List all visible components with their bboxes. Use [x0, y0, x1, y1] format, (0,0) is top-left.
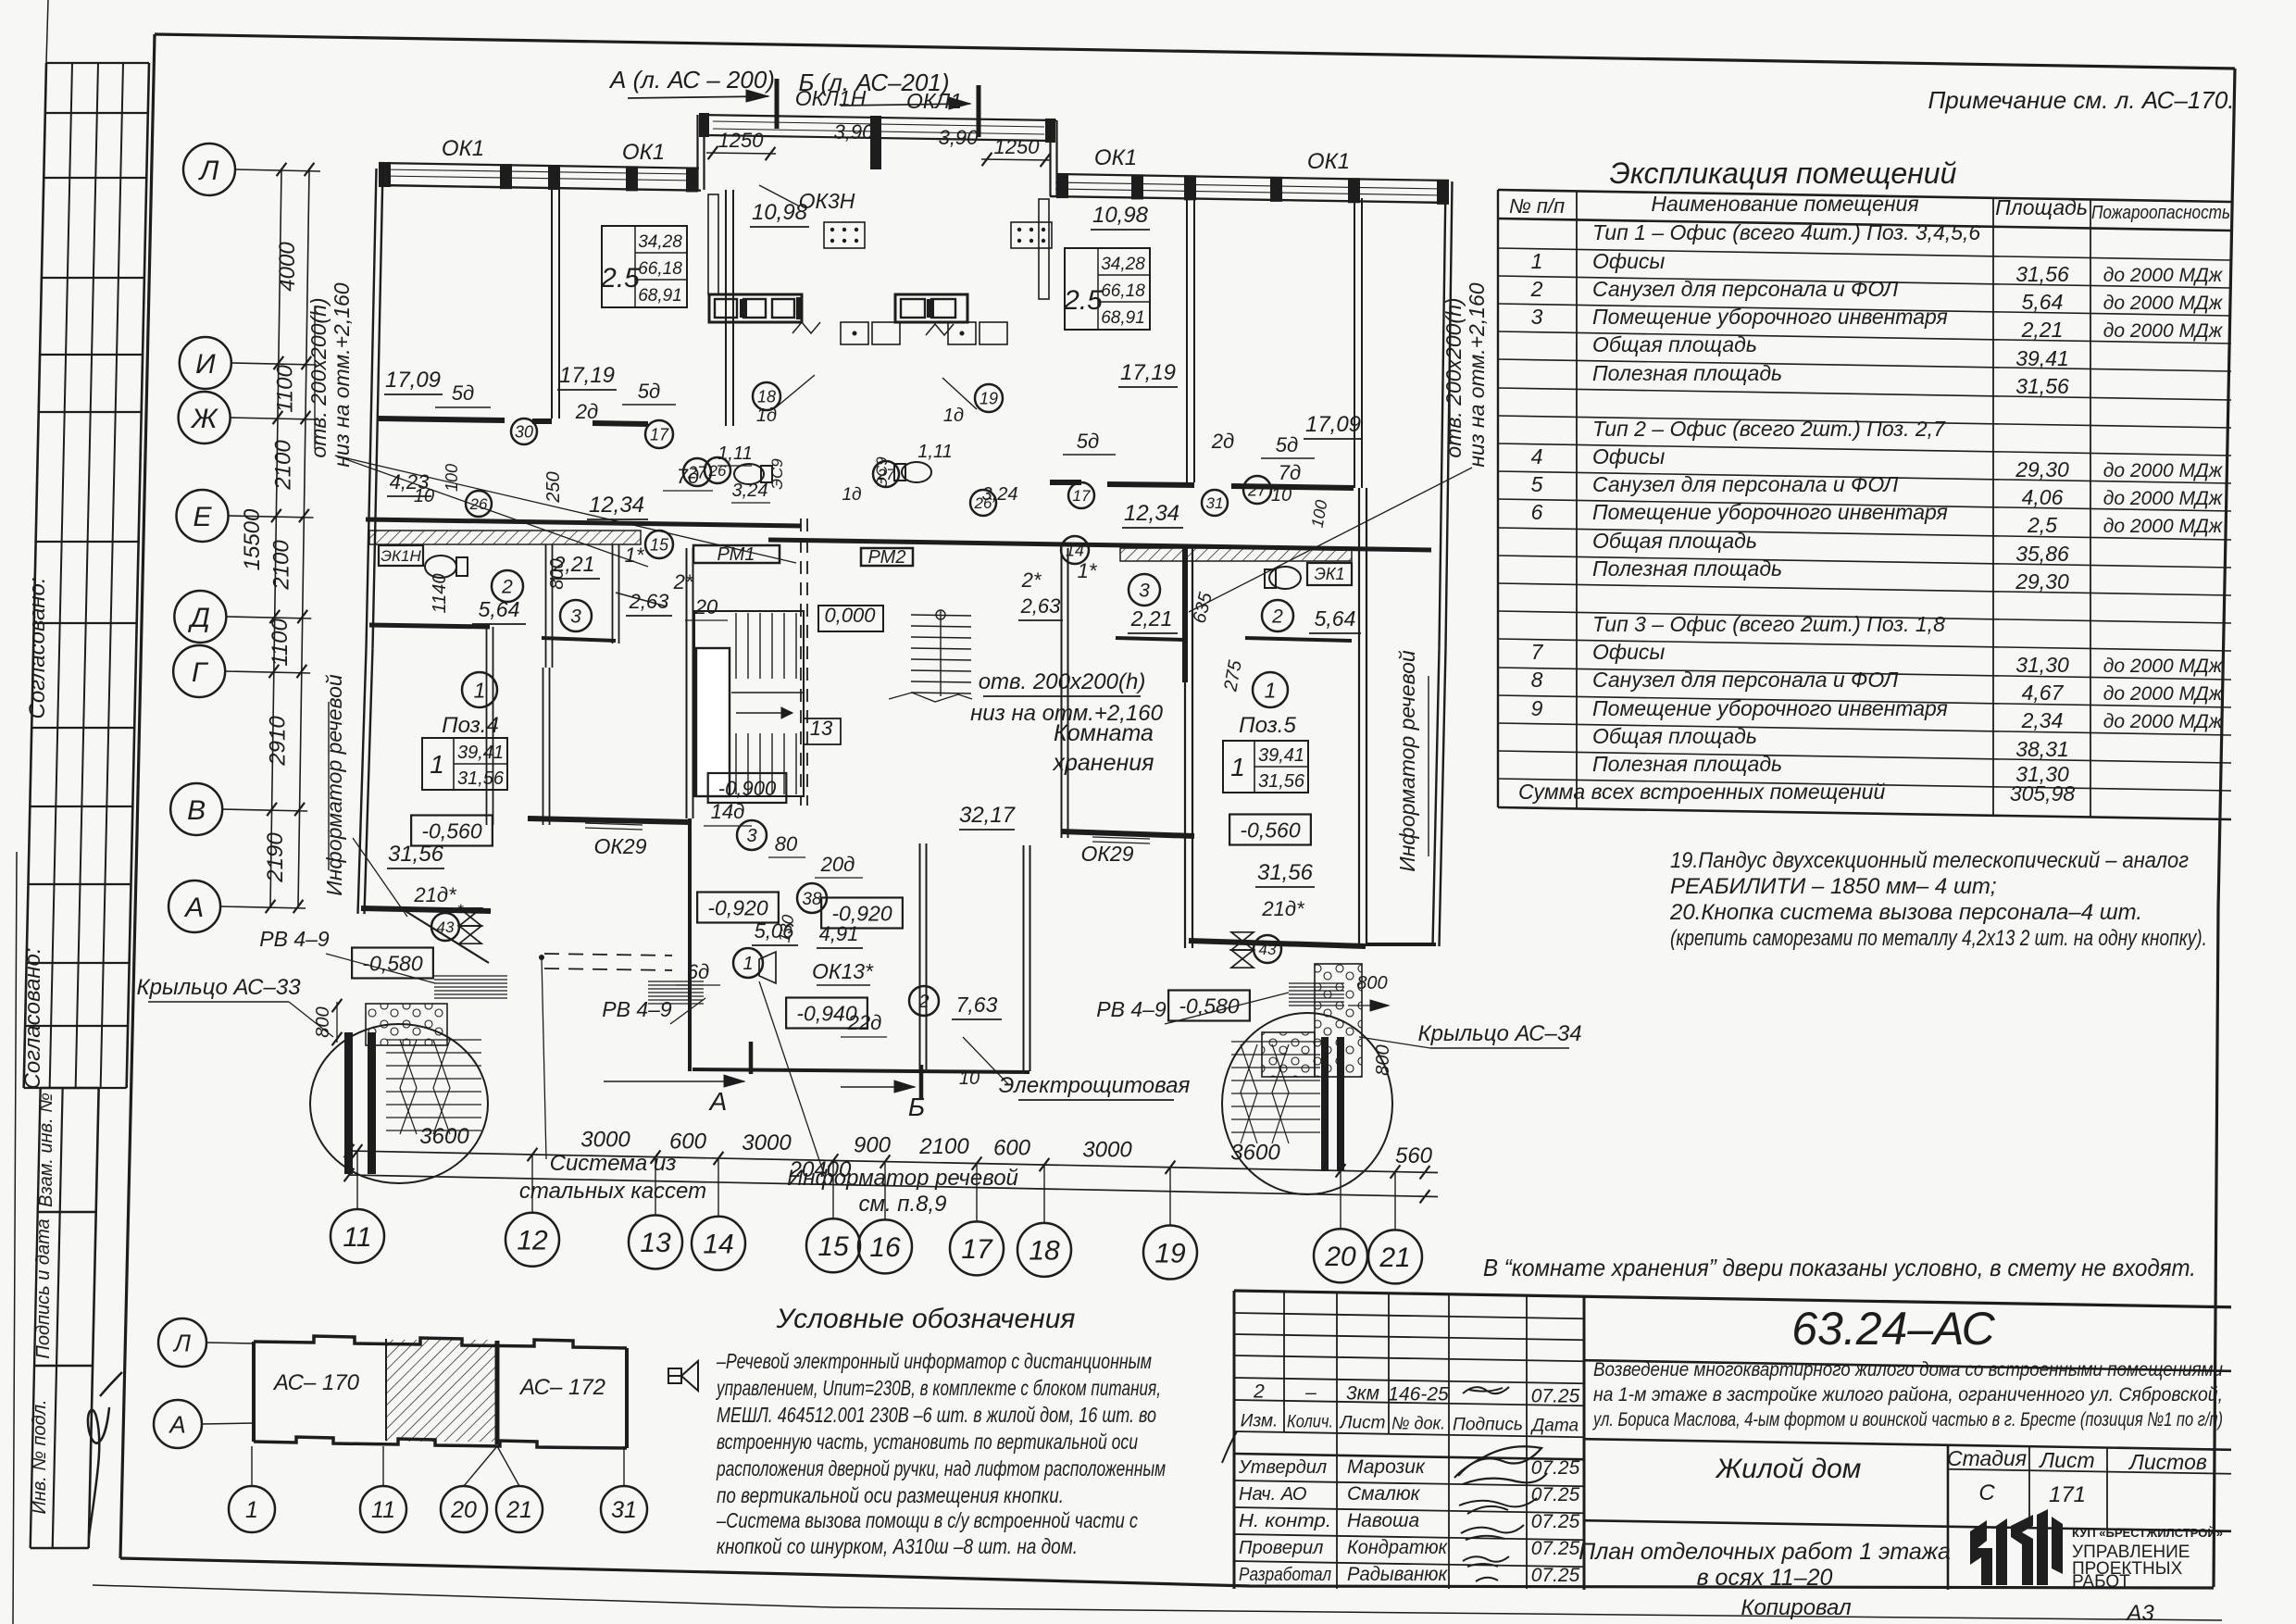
svg-text:Крыльцо АС–34: Крыльцо АС–34: [1417, 1021, 1581, 1046]
svg-text:отв. 200x200(h): отв. 200x200(h): [306, 297, 331, 457]
svg-text:17,09: 17,09: [385, 368, 441, 393]
svg-text:6д: 6д: [687, 960, 709, 983]
svg-text:ОК29: ОК29: [1080, 842, 1133, 866]
svg-text:расположения дверной ручки, на: расположения дверной ручки, над лифтом р…: [716, 1456, 1166, 1480]
svg-text:2*: 2*: [673, 570, 694, 593]
svg-text:5: 5: [1531, 472, 1543, 496]
svg-text:А3: А3: [2125, 1601, 2154, 1624]
svg-text:80: 80: [775, 832, 798, 856]
svg-text:Сумма всех встроенных помещени: Сумма всех встроенных помещений: [1518, 780, 1885, 804]
svg-text:66,18: 66,18: [638, 259, 682, 279]
svg-text:3,24: 3,24: [982, 484, 1018, 505]
svg-text:27: 27: [1247, 481, 1267, 499]
svg-text:38: 38: [802, 890, 822, 909]
svg-text:–Речевой электронный информато: –Речевой электронный информатор с дистан…: [716, 1349, 1152, 1373]
svg-text:10: 10: [959, 1068, 980, 1089]
svg-text:до 2000 МДж: до 2000 МДж: [2103, 711, 2224, 732]
svg-text:305,98: 305,98: [2010, 781, 2076, 806]
svg-text:39,41: 39,41: [2015, 346, 2069, 370]
svg-text:отв. 200x200(h): отв. 200x200(h): [1441, 297, 1466, 457]
svg-text:18: 18: [1029, 1236, 1060, 1267]
svg-text:2100: 2100: [918, 1134, 969, 1159]
svg-text:900: 900: [854, 1132, 892, 1157]
svg-text:Офисы: Офисы: [1592, 249, 1665, 273]
svg-text:5,64: 5,64: [479, 597, 520, 621]
svg-text:31: 31: [611, 1497, 637, 1523]
svg-text:66,18: 66,18: [1101, 281, 1145, 301]
svg-text:КУП «БРЕСТЖИЛСТРОЙ»: КУП «БРЕСТЖИЛСТРОЙ»: [2072, 1526, 2223, 1540]
svg-text:20.Кнопка система вызова персо: 20.Кнопка система вызова персонала–4 шт.: [1669, 900, 2142, 925]
svg-text:38,31: 38,31: [2015, 737, 2069, 761]
svg-text:Полезная площадь: Полезная площадь: [1592, 361, 1782, 385]
svg-text:ОКЛ1: ОКЛ1: [906, 89, 962, 113]
svg-text:Наименование помещения: Наименование помещения: [1651, 192, 1918, 216]
svg-text:35,86: 35,86: [2015, 542, 2069, 566]
svg-text:31: 31: [1206, 494, 1224, 512]
svg-text:21: 21: [505, 1497, 532, 1523]
svg-text:Лист: Лист: [2038, 1448, 2094, 1472]
svg-text:600: 600: [993, 1135, 1031, 1160]
svg-text:17,19: 17,19: [559, 363, 615, 388]
svg-text:2д: 2д: [1211, 430, 1234, 453]
svg-text:кнопкой со шнурком, А310ш –8 ш: кнопкой со шнурком, А310ш –8 шт. на дом.: [717, 1534, 1078, 1558]
svg-text:1*: 1*: [1078, 559, 1098, 582]
svg-text:3600: 3600: [419, 1124, 469, 1149]
svg-text:15: 15: [650, 535, 669, 554]
svg-text:5д: 5д: [1077, 430, 1099, 453]
svg-text:5,64: 5,64: [2022, 290, 2064, 314]
svg-text:до 2000 МДж: до 2000 МДж: [2103, 265, 2224, 286]
svg-text:-0,560: -0,560: [421, 818, 481, 843]
svg-text:31,56: 31,56: [2015, 374, 2069, 398]
svg-text:Согласовано:: Согласовано:: [25, 577, 50, 718]
svg-text:9: 9: [1531, 696, 1543, 720]
svg-text:171: 171: [2049, 1482, 2086, 1507]
svg-text:2,63: 2,63: [1020, 594, 1062, 618]
svg-text:17: 17: [650, 425, 669, 443]
svg-text:А: А: [708, 1087, 728, 1116]
svg-text:Полезная площадь: Полезная площадь: [1592, 752, 1782, 776]
svg-text:отв. 200x200(h): отв. 200x200(h): [979, 669, 1146, 694]
svg-text:РМ2: РМ2: [868, 547, 906, 568]
svg-text:до 2000 МДж: до 2000 МДж: [2103, 656, 2224, 677]
svg-text:-0,580: -0,580: [1179, 993, 1239, 1018]
svg-text:1д: 1д: [842, 485, 861, 505]
svg-text:В “комнате хранения” двери пок: В “комнате хранения” двери показаны усло…: [1483, 1254, 2196, 1281]
svg-text:И: И: [195, 349, 216, 380]
svg-text:№ док.: № док.: [1391, 1414, 1445, 1433]
svg-text:Листов: Листов: [2128, 1450, 2207, 1474]
svg-text:19: 19: [980, 389, 998, 407]
svg-text:8: 8: [1531, 668, 1543, 692]
svg-text:-0,560: -0,560: [1240, 818, 1300, 842]
svg-text:1д: 1д: [943, 406, 964, 426]
svg-text:31,56: 31,56: [1258, 771, 1305, 792]
svg-text:12,34: 12,34: [589, 493, 644, 518]
svg-text:Офисы: Офисы: [1592, 640, 1665, 664]
svg-text:1: 1: [742, 954, 753, 974]
svg-text:1250: 1250: [994, 135, 1041, 158]
svg-text:16: 16: [869, 1232, 901, 1263]
svg-text:1,11: 1,11: [717, 443, 752, 464]
svg-text:Н. контр.: Н. контр.: [1239, 1511, 1331, 1531]
svg-text:низ на отм.+2,160: низ на отм.+2,160: [970, 701, 1164, 726]
svg-text:3: 3: [746, 826, 756, 846]
svg-text:Помещение уборочного инвентаря: Помещение уборочного инвентаря: [1592, 305, 1948, 329]
svg-text:см. п.8,9: см. п.8,9: [858, 1192, 946, 1217]
svg-text:7: 7: [1531, 640, 1544, 664]
svg-text:Поз.4: Поз.4: [442, 713, 499, 738]
svg-text:43: 43: [437, 918, 455, 936]
svg-text:Утвердил: Утвердил: [1238, 1457, 1327, 1478]
svg-text:21д*: 21д*: [413, 883, 457, 906]
svg-text:Радыванюк: Радыванюк: [1347, 1564, 1448, 1585]
svg-text:Условные обозначения: Условные обозначения: [776, 1304, 1076, 1334]
svg-text:Е: Е: [193, 502, 213, 532]
svg-text:68,91: 68,91: [1101, 308, 1145, 328]
svg-text:10: 10: [414, 486, 434, 506]
svg-text:32,17: 32,17: [959, 803, 1017, 828]
svg-text:31,56: 31,56: [388, 842, 444, 867]
svg-text:30: 30: [515, 422, 533, 441]
svg-text:МЕШЛ. 464512.001 230В –6 шт. в: МЕШЛ. 464512.001 230В –6 шт. в жилой дом…: [717, 1403, 1156, 1427]
svg-text:800: 800: [1356, 973, 1387, 993]
svg-text:29,30: 29,30: [2015, 457, 2069, 481]
svg-text:С: С: [1978, 1480, 1995, 1505]
svg-text:600: 600: [669, 1129, 707, 1154]
svg-text:3км: 3км: [1346, 1382, 1379, 1404]
svg-text:РЕАБИЛИТИ – 1850 мм– 4 шт;: РЕАБИЛИТИ – 1850 мм– 4 шт;: [1670, 874, 1997, 899]
svg-text:0,000: 0,000: [824, 604, 876, 627]
svg-text:4,91: 4,91: [819, 922, 859, 945]
svg-text:100: 100: [443, 464, 461, 492]
svg-text:2.5: 2.5: [600, 263, 640, 294]
svg-text:20: 20: [450, 1497, 477, 1523]
svg-text:1: 1: [1265, 678, 1277, 702]
svg-text:ЭК1: ЭК1: [1314, 565, 1344, 583]
svg-text:Дата: Дата: [1530, 1417, 1578, 1436]
svg-text:2.5: 2.5: [1063, 285, 1103, 316]
svg-text:15: 15: [817, 1231, 849, 1262]
svg-text:5,64: 5,64: [1315, 606, 1356, 631]
svg-text:Стадия: Стадия: [1947, 1446, 2027, 1470]
svg-text:Марозик: Марозик: [1347, 1456, 1426, 1478]
svg-text:Тип 1 – Офис (всего 4шт.) Поз.: Тип 1 – Офис (всего 4шт.) Поз. 3,4,5,6: [1592, 220, 1980, 244]
svg-text:-0,900: -0,900: [718, 777, 777, 800]
svg-text:3: 3: [1139, 581, 1150, 602]
svg-text:План отделочных работ 1 этажа: План отделочных работ 1 этажа: [1578, 1539, 1951, 1565]
svg-text:3: 3: [570, 606, 581, 628]
svg-text:Д: Д: [188, 603, 210, 633]
svg-text:ОК13*: ОК13*: [812, 959, 874, 983]
svg-text:146-25: 146-25: [1388, 1383, 1449, 1405]
svg-text:2100: 2100: [268, 540, 293, 591]
svg-text:1100: 1100: [268, 618, 293, 667]
svg-text:20д: 20д: [820, 853, 855, 876]
svg-text:Санузел для персонала и ФОЛ: Санузел для персонала и ФОЛ: [1592, 472, 1898, 496]
svg-text:ОК1: ОК1: [622, 140, 665, 165]
svg-text:Санузел для персонала и ФОЛ: Санузел для персонала и ФОЛ: [1592, 277, 1898, 301]
svg-text:4,67: 4,67: [2022, 681, 2065, 705]
svg-text:12,34: 12,34: [1124, 501, 1179, 526]
svg-text:Информатор речевой: Информатор речевой: [1395, 650, 1419, 872]
svg-text:2100: 2100: [271, 440, 296, 491]
svg-text:Тип 2 – Офис (всего 2шт.) Поз.: Тип 2 – Офис (всего 2шт.) Поз. 2,7: [1592, 417, 1946, 441]
svg-text:Общая площадь: Общая площадь: [1592, 332, 1757, 356]
svg-text:В: В: [187, 795, 206, 826]
svg-text:1250: 1250: [718, 129, 765, 152]
svg-text:5д: 5д: [638, 380, 660, 403]
svg-text:Информатор речевой: Информатор речевой: [322, 674, 346, 896]
svg-text:ОКЛ1Н: ОКЛ1Н: [795, 86, 867, 110]
svg-text:17,09: 17,09: [1305, 412, 1361, 437]
svg-text:20: 20: [694, 595, 718, 618]
svg-text:34,28: 34,28: [638, 232, 682, 252]
svg-text:1: 1: [474, 678, 486, 702]
svg-text:Электрощитовая: Электрощитовая: [999, 1073, 1191, 1098]
svg-text:17,19: 17,19: [1120, 360, 1176, 385]
svg-text:13: 13: [640, 1228, 671, 1258]
svg-text:Пожароопасность: Пожароопасность: [2091, 203, 2230, 223]
svg-text:-0,920: -0,920: [707, 895, 767, 919]
svg-text:2: 2: [1271, 606, 1283, 628]
svg-text:1100: 1100: [272, 365, 297, 413]
svg-text:Общая площадь: Общая площадь: [1592, 724, 1757, 748]
svg-text:стальных кассет: стальных кассет: [519, 1179, 706, 1204]
svg-text:до 2000 МДж: до 2000 МДж: [2103, 293, 2224, 314]
svg-text:34,28: 34,28: [1101, 255, 1145, 274]
svg-text:хранения: хранения: [1053, 750, 1154, 776]
svg-text:ул. Бориса Маслова, 4-ым форто: ул. Бориса Маслова, 4-ым фортом и воинск…: [1591, 1408, 2223, 1430]
svg-text:Жилой дом: Жилой дом: [1715, 1454, 1862, 1484]
svg-text:1: 1: [245, 1497, 258, 1523]
svg-text:Тип 3 – Офис (всего 2шт.) Поз.: Тип 3 – Офис (всего 2шт.) Поз. 1,8: [1592, 612, 1945, 636]
svg-text:до 2000 МДж: до 2000 МДж: [2103, 320, 2224, 342]
svg-text:управлением, Uпит=230В, в комп: управлением, Uпит=230В, в комплекте с бл…: [716, 1376, 1161, 1400]
svg-text:15500: 15500: [240, 508, 265, 570]
svg-text:10: 10: [1271, 485, 1291, 506]
svg-text:до 2000 МДж: до 2000 МДж: [2103, 683, 2224, 705]
svg-text:5д: 5д: [1276, 433, 1298, 456]
svg-text:63.24–АС: 63.24–АС: [1791, 1303, 1995, 1355]
svg-text:6: 6: [1531, 500, 1543, 524]
svg-text:7д: 7д: [1279, 461, 1301, 484]
svg-text:на 1-м этаже в застройке жилог: на 1-м этаже в застройке жилого района, …: [1593, 1383, 2223, 1405]
svg-text:18: 18: [757, 387, 776, 406]
svg-text:Примечание см. л. АС–170.: Примечание см. л. АС–170.: [1928, 86, 2234, 114]
svg-text:Л: Л: [198, 156, 219, 186]
svg-text:3000: 3000: [1082, 1137, 1132, 1162]
svg-text:20400: 20400: [789, 1157, 852, 1182]
svg-text:21: 21: [1379, 1243, 1410, 1273]
svg-text:2,21: 2,21: [2021, 318, 2064, 342]
svg-text:31,56: 31,56: [1257, 860, 1314, 885]
svg-text:до 2000 МДж: до 2000 МДж: [2103, 516, 2224, 537]
svg-text:2,21: 2,21: [1130, 606, 1173, 631]
svg-text:11: 11: [343, 1222, 371, 1253]
svg-text:Проверил: Проверил: [1239, 1538, 1323, 1558]
svg-text:ЭС9: ЭС9: [768, 458, 786, 490]
svg-text:Кондратюк: Кондратюк: [1347, 1537, 1448, 1558]
svg-text:13: 13: [810, 717, 833, 740]
svg-text:Навоша: Навоша: [1347, 1510, 1419, 1531]
svg-text:39,41: 39,41: [457, 743, 504, 763]
svg-text:АС– 172: АС– 172: [518, 1375, 605, 1400]
svg-text:ОК1: ОК1: [1094, 145, 1137, 170]
svg-text:10,98: 10,98: [752, 200, 808, 225]
svg-text:4,06: 4,06: [2022, 485, 2064, 509]
svg-text:встроенную часть, установить п: встроенную часть, установить по вертикал…: [717, 1430, 1138, 1454]
svg-text:РВ 4–9: РВ 4–9: [1096, 997, 1167, 1021]
svg-text:РВ 4–9: РВ 4–9: [259, 927, 330, 951]
svg-text:2д: 2д: [575, 400, 598, 423]
svg-text:2,34: 2,34: [2021, 708, 2064, 732]
svg-text:(крепить саморезами по металлу: (крепить саморезами по металлу 4,2x13 2 …: [1670, 926, 2207, 951]
svg-text:07.25: 07.25: [1531, 1511, 1580, 1532]
svg-text:3,90: 3,90: [834, 120, 875, 144]
svg-text:ОК1: ОК1: [1307, 149, 1350, 174]
svg-text:800: 800: [313, 1006, 333, 1037]
svg-text:7д: 7д: [677, 465, 699, 488]
svg-text:17: 17: [961, 1234, 993, 1265]
svg-text:Поз.5: Поз.5: [1239, 713, 1296, 738]
svg-text:3,24: 3,24: [732, 481, 768, 501]
svg-text:4000: 4000: [275, 242, 300, 292]
svg-text:Офисы: Офисы: [1592, 444, 1665, 468]
svg-text:А: А: [168, 1410, 185, 1438]
svg-text:Лист: Лист: [1339, 1413, 1386, 1432]
svg-text:Помещение уборочного инвентаря: Помещение уборочного инвентаря: [1592, 696, 1948, 720]
svg-text:3000: 3000: [742, 1131, 792, 1156]
svg-text:ОК1: ОК1: [442, 136, 484, 161]
svg-text:11: 11: [371, 1497, 395, 1523]
svg-text:800: 800: [1373, 1044, 1393, 1075]
svg-text:низ на отм.+2,160: низ на отм.+2,160: [330, 282, 354, 467]
svg-text:Нач. АО: Нач. АО: [1239, 1484, 1306, 1505]
svg-text:29,30: 29,30: [2015, 569, 2069, 593]
svg-text:2: 2: [917, 992, 929, 1012]
svg-text:2,5: 2,5: [2027, 513, 2057, 537]
svg-text:Копировал: Копировал: [1741, 1595, 1852, 1620]
svg-text:в осях 11–20: в осях 11–20: [1697, 1565, 1833, 1591]
svg-text:Изм.: Изм.: [1241, 1411, 1279, 1430]
svg-text:3000: 3000: [580, 1128, 630, 1153]
svg-text:–Система вызова помощи в с/у в: –Система вызова помощи в с/у встроенной …: [716, 1508, 1138, 1532]
svg-text:РМ1: РМ1: [717, 544, 755, 565]
svg-text:7,63: 7,63: [956, 993, 998, 1017]
svg-text:12: 12: [517, 1226, 548, 1256]
svg-text:РВ 4–9: РВ 4–9: [602, 997, 672, 1021]
svg-text:Ж: Ж: [190, 404, 218, 434]
svg-text:АС– 170: АС– 170: [272, 1370, 360, 1395]
svg-text:ОК29: ОК29: [593, 834, 646, 858]
svg-text:3600: 3600: [1230, 1141, 1280, 1166]
svg-text:низ на отм.+2,160: низ на отм.+2,160: [1465, 282, 1489, 467]
svg-text:Л: Л: [172, 1329, 191, 1356]
svg-text:Площадь: Площадь: [1995, 195, 2088, 219]
svg-text:2910: 2910: [266, 716, 291, 767]
svg-text:Санузел для персонала и ФОЛ: Санузел для персонала и ФОЛ: [1592, 668, 1898, 692]
svg-text:Экспликация помещений: Экспликация помещений: [1610, 156, 1957, 190]
svg-text:до 2000 МДж: до 2000 МДж: [2103, 488, 2224, 509]
svg-text:26: 26: [708, 462, 727, 480]
svg-text:560: 560: [1395, 1143, 1433, 1168]
svg-text:Смалюк: Смалюк: [1347, 1483, 1421, 1505]
svg-text:800: 800: [547, 558, 568, 589]
svg-text:Общая площадь: Общая площадь: [1592, 529, 1757, 553]
svg-text:1д: 1д: [756, 406, 777, 426]
svg-text:2190: 2190: [263, 832, 288, 883]
svg-text:14д: 14д: [711, 800, 745, 823]
svg-text:1: 1: [430, 750, 444, 779]
svg-text:ЭК1Н: ЭК1Н: [381, 547, 421, 565]
svg-text:-0,940: -0,940: [796, 1001, 856, 1025]
svg-text:31,56: 31,56: [457, 768, 505, 789]
svg-text:Помещение уборочного инвентаря: Помещение уборочного инвентаря: [1592, 500, 1948, 524]
svg-text:17: 17: [1073, 487, 1091, 505]
svg-text:21д*: 21д*: [1261, 897, 1305, 920]
svg-text:РАБОТ: РАБОТ: [2072, 1572, 2130, 1592]
svg-text:Согласовано:: Согласовано:: [20, 947, 45, 1089]
svg-text:Г: Г: [192, 657, 209, 688]
svg-text:1: 1: [1531, 249, 1543, 273]
svg-text:4: 4: [1531, 444, 1543, 468]
svg-text:68,91: 68,91: [638, 286, 682, 306]
svg-text:по вертикальной оси размещения: по вертикальной оси размещения кнопки.: [717, 1483, 1064, 1507]
svg-text:1140: 1140: [430, 573, 450, 613]
svg-text:07.25: 07.25: [1531, 1565, 1580, 1586]
svg-text:Подпись: Подпись: [1453, 1416, 1523, 1435]
svg-text:250: 250: [543, 471, 564, 503]
svg-text:2: 2: [1530, 277, 1543, 301]
svg-text:07.25: 07.25: [1531, 1386, 1580, 1407]
svg-text:А (л. АС – 200): А (л. АС – 200): [608, 66, 775, 94]
svg-text:07.25: 07.25: [1531, 1457, 1580, 1479]
svg-text:10,98: 10,98: [1092, 203, 1149, 228]
svg-text:26: 26: [469, 495, 488, 513]
svg-text:19: 19: [1154, 1238, 1186, 1268]
svg-text:Полезная площадь: Полезная площадь: [1592, 556, 1782, 581]
svg-text:20: 20: [1324, 1242, 1356, 1272]
svg-text:А: А: [183, 893, 204, 923]
svg-text:3: 3: [1531, 305, 1543, 329]
svg-text:1,11: 1,11: [917, 442, 952, 462]
svg-text:31,30: 31,30: [2015, 653, 2069, 677]
svg-text:19.Пандус двухсекционный телес: 19.Пандус двухсекционный телескопический…: [1670, 848, 2189, 873]
svg-text:27: 27: [877, 466, 895, 483]
svg-text:Инв. № подл.: Инв. № подл.: [30, 1399, 50, 1514]
svg-text:2: 2: [501, 577, 513, 598]
svg-text:2: 2: [1253, 1380, 1265, 1402]
svg-text:Крыльцо АС–33: Крыльцо АС–33: [136, 975, 301, 1000]
svg-text:Подпись и дата: Подпись и дата: [33, 1218, 54, 1358]
svg-text:Разработал: Разработал: [1239, 1565, 1331, 1585]
svg-text:39,41: 39,41: [1258, 745, 1304, 766]
svg-text:14: 14: [703, 1230, 733, 1260]
svg-text:1: 1: [1230, 753, 1245, 781]
svg-text:07.25: 07.25: [1531, 1484, 1580, 1505]
svg-text:2,63: 2,63: [629, 590, 670, 613]
svg-text:1*: 1*: [625, 543, 645, 567]
svg-text:2*: 2*: [1021, 568, 1042, 592]
svg-text:№ п/п: № п/п: [1509, 194, 1565, 218]
svg-text:Возведение многоквартирного жи: Возведение многоквартирного жилого дома …: [1593, 1358, 2223, 1380]
svg-text:3,90: 3,90: [939, 126, 980, 149]
svg-text:31,56: 31,56: [2015, 262, 2069, 286]
svg-text:5д: 5д: [452, 381, 474, 405]
svg-text:до 2000 МДж: до 2000 МДж: [2103, 460, 2224, 481]
svg-text:Колич.: Колич.: [1287, 1412, 1333, 1431]
